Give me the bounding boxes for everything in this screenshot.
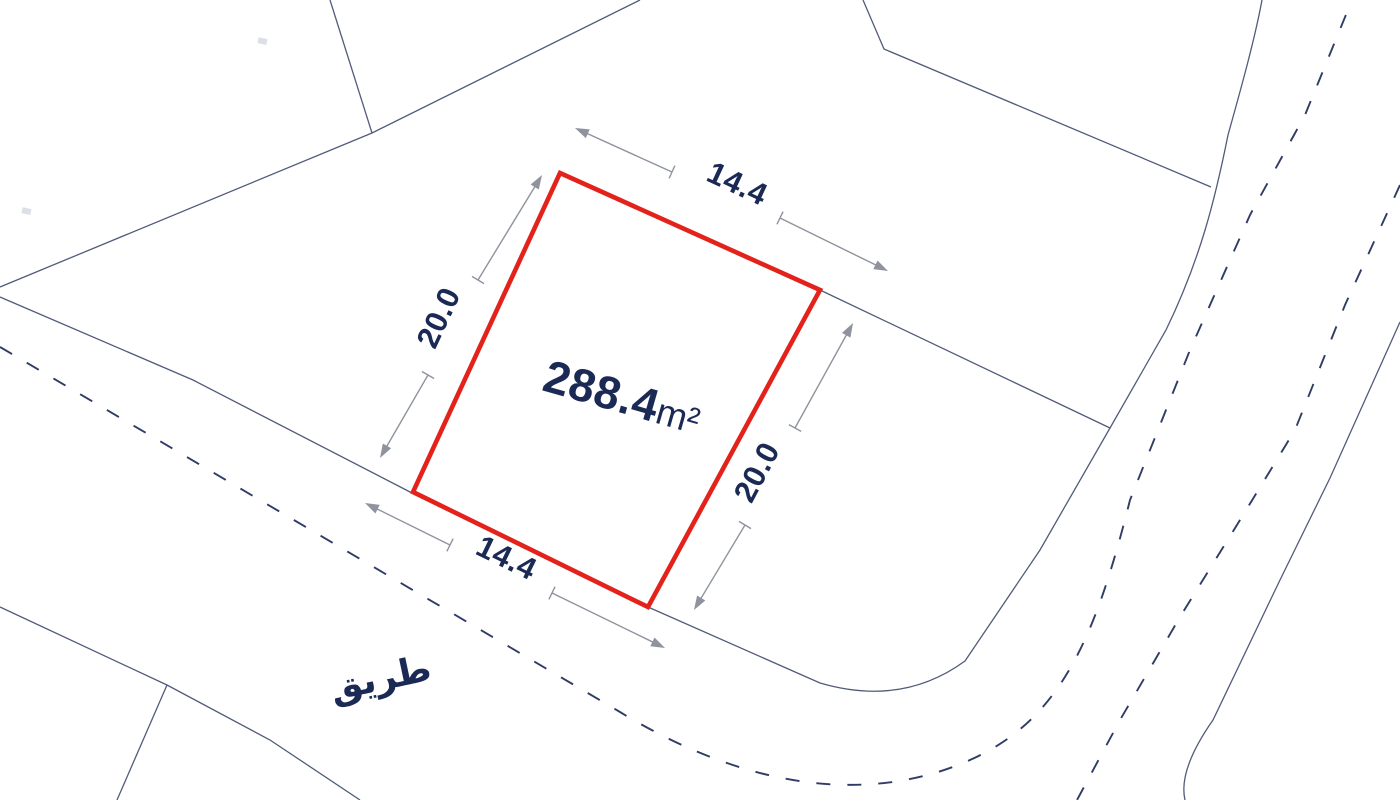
parcel-map-canvas: 14.4 20.0 20.0 14.4 288.4m² طريق bbox=[0, 0, 1400, 800]
boundary-line-far-right bbox=[1184, 322, 1400, 800]
dimension-label-top: 14.4 bbox=[702, 154, 774, 212]
dimension-arrow-left-up bbox=[472, 175, 542, 284]
boundary-line-right-corner-diagonal bbox=[820, 290, 1110, 428]
boundary-line-upper-diagonal bbox=[0, 0, 640, 287]
map-artifact-speck bbox=[21, 207, 31, 215]
dimension-arrow-top-left bbox=[575, 128, 675, 178]
boundary-line-street-near bbox=[0, 0, 1262, 691]
neighbor-parcel-boundaries bbox=[0, 0, 1400, 800]
dimension-arrow-bottom-left bbox=[365, 503, 453, 551]
dimension-label-left: 20.0 bbox=[409, 282, 467, 353]
boundary-line-topright-diagonal bbox=[863, 0, 1211, 187]
boundary-line-bottomleft-branch bbox=[117, 685, 167, 800]
road-name-label: طريق bbox=[326, 648, 435, 709]
dimension-arrow-left-down bbox=[380, 371, 434, 458]
boundary-line-topleft-vertical bbox=[330, 0, 372, 133]
road-dashed-centerline-outer bbox=[1077, 185, 1400, 800]
dimension-arrow-right-down bbox=[694, 521, 751, 610]
parcel-area-label: 288.4m² bbox=[538, 349, 707, 443]
dimension-arrow-bottom-right bbox=[549, 587, 665, 648]
map-artifact-speck bbox=[257, 37, 267, 45]
dimension-arrow-right-up bbox=[789, 323, 853, 431]
cadastral-parcel-map: 14.4 20.0 20.0 14.4 288.4m² طريق bbox=[0, 0, 1400, 800]
parcel-area-value: 288.4 bbox=[538, 349, 665, 431]
dimension-arrow-top-right bbox=[777, 212, 888, 271]
boundary-line-bottomleft bbox=[0, 607, 360, 800]
road-centerlines bbox=[0, 0, 1400, 800]
road-dashed-centerline-inner bbox=[0, 0, 1352, 785]
